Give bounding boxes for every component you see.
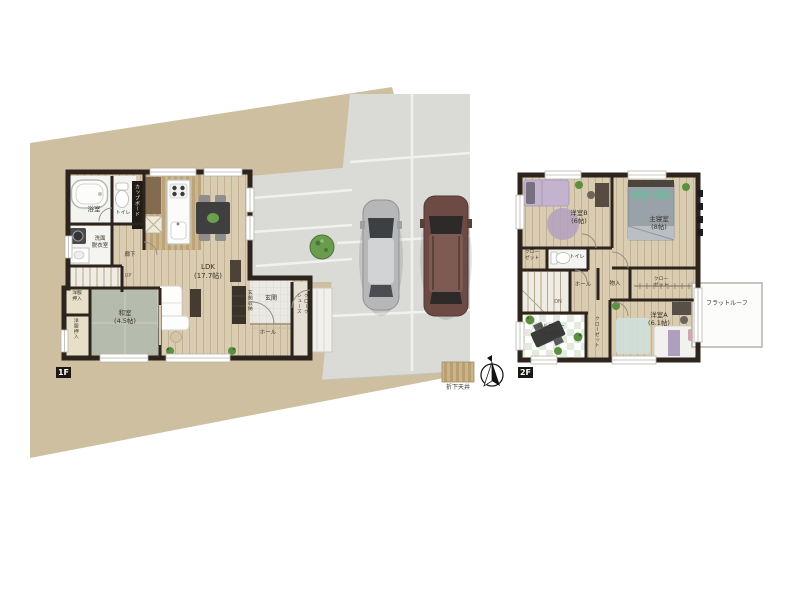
north-compass-icon	[481, 355, 503, 386]
label-closet-s: クローゼット	[593, 316, 598, 358]
label-balcony-name: バルコニー	[537, 324, 564, 331]
label-shoes-cloak-col1: シューズ	[295, 293, 300, 329]
label-washitsu-name: 和室	[119, 309, 132, 317]
label-closet-b: 洋服押入	[72, 318, 77, 358]
label-balcony: バルコニー (4.5帖)	[526, 324, 576, 338]
label-hall-1f: ホール	[251, 330, 285, 337]
label-washroom: 洗面 脱衣室	[84, 236, 116, 250]
label-toilet-2f: トイレ	[564, 254, 590, 260]
label-hall-2f: ホール	[568, 282, 598, 289]
label-ldk-size: (17.7帖)	[194, 272, 222, 281]
label-ldk-name: LDK	[201, 263, 215, 272]
label-washitsu-size: (4.5帖)	[114, 317, 136, 325]
label-bedroom-b-name: 洋室B	[570, 209, 587, 217]
label-flat-roof: フラットルーフ	[692, 300, 762, 308]
flat-roof	[692, 283, 762, 347]
label-storage: 物入	[600, 281, 630, 288]
floor1-tag: 1F	[56, 367, 71, 378]
tree	[310, 235, 334, 259]
label-closet-e: クロー ゼット	[646, 277, 676, 289]
label-master-bedroom-name: 主寝室	[649, 215, 669, 223]
genkan-storage-cabinet	[232, 286, 246, 324]
label-closet-a: 洋服 押入	[64, 291, 90, 303]
label-washitsu: 和室 (4.5帖)	[104, 309, 146, 325]
label-washroom-line2: 脱衣室	[92, 243, 109, 250]
floor-plan-page: 1F 浴室 トイレ カップボード 洗面 脱衣室 廊下 UP LDK (17.7帖…	[0, 0, 800, 600]
label-hallway: 廊下	[116, 252, 144, 259]
legend-swatch-lowered-ceiling	[442, 362, 474, 382]
label-genkan: 玄関	[258, 295, 284, 303]
label-bedroom-a-size: (6.1帖)	[648, 319, 670, 327]
label-master-bedroom: 主寝室 (8帖)	[636, 215, 682, 231]
car-maroon	[420, 196, 472, 320]
car-silver	[359, 200, 403, 316]
legend-lowered-ceiling-label: 折下天井	[432, 384, 484, 392]
label-bedroom-b: 洋室B (6帖)	[556, 209, 602, 225]
label-bedroom-a-name: 洋室A	[650, 311, 667, 319]
stairs-2f	[522, 272, 570, 312]
label-master-bedroom-size: (8帖)	[651, 223, 667, 231]
label-bedroom-a: 洋室A (6.1帖)	[636, 311, 682, 327]
label-dn: DN	[550, 299, 566, 305]
label-washroom-line1: 洗面	[94, 236, 105, 243]
label-closet-nw-line2: ゼット	[525, 256, 539, 262]
label-bedroom-b-size: (6帖)	[571, 217, 587, 225]
floorplan-graphic	[0, 0, 800, 600]
label-closet-e-line2: ゼット	[654, 283, 668, 289]
label-closet-a-line2: 押入	[72, 297, 82, 303]
tv-board	[190, 289, 201, 317]
label-genkan-storage: 玄関収納	[246, 290, 251, 328]
label-ldk: LDK (17.7帖)	[182, 263, 234, 281]
label-closet-nw: クロー ゼット	[518, 250, 546, 262]
label-up: UP	[121, 273, 135, 279]
label-bath: 浴室	[76, 205, 112, 213]
label-balcony-size: (4.5帖)	[542, 331, 561, 338]
label-cupboard: カップボード	[134, 184, 139, 228]
label-shoes-cloak-col2: クローク	[302, 293, 307, 329]
floor2-tag: 2F	[518, 367, 533, 378]
